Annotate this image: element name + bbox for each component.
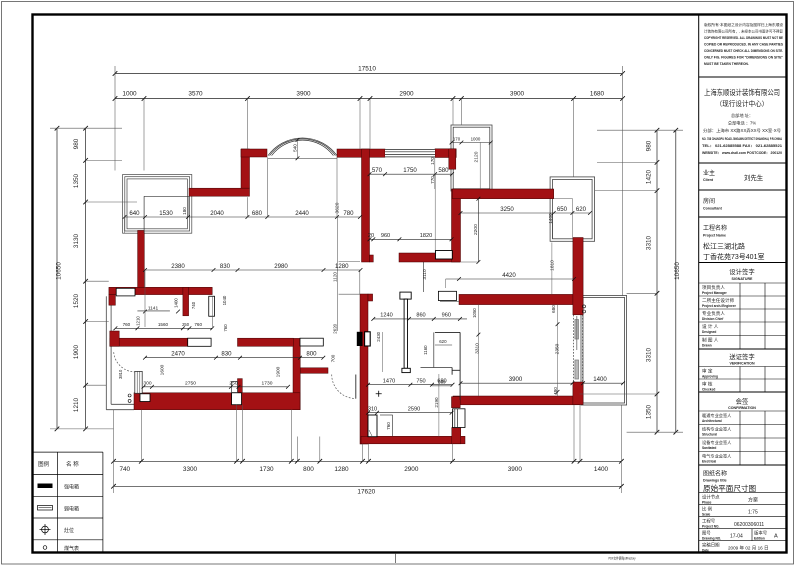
svg-text:570: 570 (372, 167, 383, 174)
svg-text:2380: 2380 (171, 263, 185, 270)
svg-text:740: 740 (119, 466, 130, 473)
svg-text:SIGNATURE: SIGNATURE (732, 277, 754, 281)
svg-text:1730: 1730 (259, 466, 274, 473)
svg-text:2470: 2470 (171, 351, 185, 358)
svg-text:780: 780 (343, 210, 354, 217)
svg-text:4420: 4420 (502, 272, 516, 279)
svg-text:2009 年 02 月 16 日: 2009 年 02 月 16 日 (728, 545, 769, 552)
svg-text:2900: 2900 (404, 466, 419, 473)
svg-text:1900: 1900 (73, 344, 80, 359)
svg-text:丁香花苑73号401室: 丁香花苑73号401室 (703, 252, 764, 261)
svg-text:1400: 1400 (174, 298, 179, 308)
svg-text:1350: 1350 (73, 173, 80, 188)
svg-text:1520: 1520 (73, 293, 80, 308)
svg-text:10650: 10650 (56, 262, 63, 280)
svg-text:680: 680 (252, 210, 263, 217)
svg-text:3900: 3900 (508, 466, 523, 473)
svg-text:310: 310 (368, 407, 377, 413)
svg-text:1350: 1350 (646, 404, 653, 419)
svg-text:3570: 3570 (188, 91, 203, 98)
svg-text:总部地 址：: 总部地 址： (731, 112, 753, 119)
svg-text:3310: 3310 (475, 343, 481, 354)
svg-text:760: 760 (194, 322, 202, 327)
svg-text:工程名称: 工程名称 (703, 224, 727, 232)
svg-text:3110: 3110 (422, 269, 428, 280)
svg-text:2980: 2980 (274, 263, 288, 270)
svg-text:700: 700 (331, 354, 336, 362)
svg-text:830: 830 (221, 351, 232, 358)
svg-text:540: 540 (293, 144, 298, 152)
svg-text:1900: 1900 (276, 366, 282, 377)
svg-text:1400: 1400 (548, 213, 553, 224)
svg-text:760: 760 (386, 422, 391, 430)
svg-text:2350: 2350 (555, 343, 561, 354)
svg-text:17-04: 17-04 (730, 534, 743, 540)
svg-text:1000: 1000 (122, 91, 137, 98)
svg-text:1040: 1040 (222, 295, 227, 305)
svg-text:2040: 2040 (210, 210, 224, 217)
svg-text:620: 620 (439, 339, 447, 344)
svg-text:06200306011: 06200306011 (734, 522, 764, 528)
svg-text:2620: 2620 (333, 323, 338, 333)
svg-text:审 核: 审 核 (702, 381, 713, 388)
svg-text:860: 860 (416, 313, 425, 319)
svg-text:Electrical: Electrical (702, 460, 716, 464)
svg-text:CONCERNED MUST CHECK ALL DIMEN: CONCERNED MUST CHECK ALL DIMENSIONS ON S… (704, 49, 783, 53)
svg-text:1280: 1280 (335, 263, 349, 270)
svg-text:Phase: Phase (702, 501, 712, 505)
svg-text:1420: 1420 (646, 169, 653, 184)
svg-text:17510: 17510 (358, 66, 376, 73)
svg-text:250: 250 (229, 381, 237, 387)
svg-text:房间: 房间 (703, 197, 715, 205)
svg-text:17620: 17620 (357, 489, 375, 496)
svg-text:项目负责人: 项目负责人 (702, 284, 725, 291)
svg-text:680: 680 (438, 380, 446, 385)
svg-text:业主: 业主 (703, 169, 715, 177)
svg-text:960: 960 (442, 313, 451, 319)
svg-text:ONLY FIG. FIGURES FOR "DIMENSI: ONLY FIG. FIGURES FOR "DIMENSIONS ON SIT… (704, 56, 783, 60)
svg-text:1600: 1600 (160, 364, 166, 375)
svg-text:3620: 3620 (335, 202, 341, 213)
svg-text:弱电箱: 弱电箱 (64, 506, 79, 513)
svg-text:Approving: Approving (702, 375, 718, 379)
svg-text:760: 760 (123, 322, 131, 327)
svg-text:灶位: 灶位 (64, 527, 74, 534)
svg-text:Division Chief: Division Chief (702, 317, 724, 321)
svg-text:980: 980 (73, 138, 80, 149)
svg-text:1530: 1530 (159, 210, 173, 217)
svg-text:总部电话 ：7%: 总部电话 ：7% (728, 120, 756, 127)
svg-text:MUST BE TAKEN THEREON.: MUST BE TAKEN THEREON. (704, 62, 749, 66)
svg-text:750: 750 (416, 379, 425, 385)
svg-text:Project arch./Engineer: Project arch./Engineer (702, 304, 737, 308)
svg-text:制 图 人: 制 图 人 (702, 337, 719, 344)
svg-text:1120: 1120 (333, 272, 338, 282)
svg-text:1400: 1400 (593, 376, 607, 383)
svg-text:图纸名称: 图纸名称 (703, 470, 727, 478)
svg-text:COPIED OR REPRODUCED. IN ANY: COPIED OR REPRODUCED. IN ANY CASE PARTIE… (704, 43, 784, 47)
svg-text:会签: 会签 (736, 397, 749, 406)
svg-text:2440: 2440 (295, 210, 309, 217)
svg-text:3900: 3900 (509, 376, 523, 383)
svg-text:VERIFICATION: VERIFICATION (729, 362, 754, 366)
svg-text:170: 170 (453, 136, 461, 141)
svg-text:740: 740 (191, 301, 196, 309)
svg-text:二所主任设计师: 二所主任设计师 (702, 297, 735, 304)
svg-text:名 称: 名 称 (66, 460, 79, 468)
svg-text:审 定: 审 定 (702, 368, 713, 375)
svg-text:3900: 3900 (510, 91, 525, 98)
svg-text:830: 830 (220, 263, 231, 270)
svg-text:1240: 1240 (380, 313, 392, 319)
svg-text:3810: 3810 (118, 369, 123, 379)
svg-text:800: 800 (303, 466, 314, 473)
svg-text:Sanitated: Sanitated (702, 446, 716, 450)
svg-text:Project NO.: Project NO. (702, 525, 719, 529)
svg-text:PDF文件使用pdfFactory: PDF文件使用pdfFactory (609, 556, 636, 561)
svg-text:刘先生: 刘先生 (744, 173, 764, 182)
svg-text:上海东顺设计装饰有限公司: 上海东顺设计装饰有限公司 (704, 88, 780, 97)
svg-text:TEL： 021-62885588 FAX： 02: TEL： 021-62885588 FAX： 021-62885521 (702, 144, 782, 148)
svg-text:10650: 10650 (674, 262, 681, 280)
svg-text:180: 180 (182, 207, 187, 215)
svg-text:Drawing NO.: Drawing NO. (702, 537, 721, 541)
svg-text:（现行设计中心）: （现行设计中心） (716, 99, 769, 108)
svg-text:3900: 3900 (296, 91, 311, 98)
svg-text:3310: 3310 (646, 347, 653, 362)
svg-text:Project Name: Project Name (703, 234, 726, 238)
svg-text:2750: 2750 (185, 381, 196, 387)
svg-text:3310: 3310 (646, 235, 653, 250)
svg-text:Drawings title: Drawings title (703, 479, 727, 483)
svg-text:480: 480 (553, 387, 558, 395)
svg-text:170: 170 (430, 157, 435, 165)
svg-text:980: 980 (646, 140, 653, 151)
svg-text:图例: 图例 (38, 460, 50, 468)
svg-text:专业负责人: 专业负责人 (702, 310, 725, 317)
svg-text:松江三湖北路: 松江三湖北路 (703, 242, 745, 251)
svg-text:1730: 1730 (262, 381, 273, 387)
svg-text:650: 650 (557, 206, 568, 213)
svg-text:计装饰有限公司所有，, 未经本公司书面许可不得复: 计装饰有限公司所有，, 未经本公司书面许可不得复 (704, 29, 784, 34)
svg-text:Project Manager: Project Manager (702, 291, 728, 295)
svg-text:结构专业会签人: 结构专业会签人 (702, 426, 732, 433)
svg-text:3250: 3250 (500, 206, 514, 213)
svg-text:COPYRIGHT RESERVED. ALL DRAWIN: COPYRIGHT RESERVED. ALL DRAWINGS MUST NO… (704, 36, 784, 40)
svg-text:Client: Client (703, 178, 714, 182)
svg-text:770: 770 (430, 176, 435, 184)
svg-text:Drawn: Drawn (702, 344, 712, 348)
svg-text:Consultant: Consultant (703, 207, 723, 211)
svg-text:Date: Date (702, 549, 709, 553)
svg-text:680: 680 (551, 305, 556, 313)
svg-text:960: 960 (381, 233, 390, 239)
svg-text:2120: 2120 (474, 151, 480, 162)
svg-text:Edition: Edition (754, 537, 765, 541)
svg-text:800: 800 (306, 351, 317, 358)
svg-text:2430: 2430 (376, 331, 381, 341)
svg-text:2900: 2900 (399, 91, 414, 98)
svg-text:1400: 1400 (594, 466, 609, 473)
svg-text:640: 640 (129, 210, 140, 217)
svg-text:1820: 1820 (420, 233, 432, 239)
svg-text:2190: 2190 (434, 397, 439, 408)
svg-text:2590: 2590 (408, 407, 420, 413)
svg-text:A: A (774, 534, 778, 540)
svg-text:1280: 1280 (334, 466, 349, 473)
svg-text:3130: 3130 (73, 233, 80, 248)
svg-text:设 计 人: 设 计 人 (702, 323, 719, 330)
svg-text:1141: 1141 (148, 305, 159, 311)
svg-text:620: 620 (576, 206, 587, 213)
svg-text:1470: 1470 (383, 379, 395, 385)
svg-text:版权所有·本图纸之设计内容及图样归上海东顺设: 版权所有·本图纸之设计内容及图样归上海东顺设 (704, 22, 784, 27)
svg-text:1050: 1050 (472, 308, 477, 318)
svg-text:Designed: Designed (702, 330, 716, 334)
svg-text:1:75: 1:75 (748, 510, 758, 516)
svg-text:原始平面尺寸图: 原始平面尺寸图 (703, 483, 756, 493)
svg-text:暖通专业会签人: 暖通专业会签人 (702, 412, 732, 419)
svg-text:Scale: Scale (702, 513, 711, 517)
svg-text:1210: 1210 (136, 316, 141, 326)
svg-text:1210: 1210 (73, 397, 80, 412)
svg-text:WEBSITE： www.dsdl.com: WEBSITE： www.dsdl.com POSTCODE： 200120 (702, 151, 782, 155)
svg-text:设备专业会签人: 设备专业会签人 (702, 439, 732, 446)
svg-text:Checked: Checked (702, 388, 715, 392)
svg-text:1680: 1680 (590, 91, 605, 98)
svg-text:电气专业会签人: 电气专业会签人 (702, 453, 732, 460)
svg-text:1000: 1000 (471, 136, 481, 141)
svg-text:1750: 1750 (403, 167, 417, 174)
svg-text:煤气表: 煤气表 (64, 545, 79, 552)
svg-text:Structural: Structural (702, 433, 717, 437)
svg-text:250: 250 (182, 322, 190, 327)
svg-text:1560: 1560 (158, 322, 169, 327)
svg-text:分部：上海市 XX路XX弄XX号 XX室·X号: 分部：上海市 XX路XX弄XX号 XX室·X号 (703, 127, 781, 134)
svg-text:送证签字: 送证签字 (729, 352, 755, 361)
svg-text:20: 20 (368, 233, 374, 239)
svg-text:Architectural: Architectural (702, 419, 722, 423)
svg-text:300: 300 (143, 381, 151, 387)
svg-text:1810: 1810 (550, 260, 556, 271)
svg-text:760: 760 (223, 324, 228, 332)
svg-text:设计签字: 设计签字 (729, 267, 755, 276)
svg-text:1160: 1160 (423, 345, 428, 355)
svg-text:3300: 3300 (183, 466, 198, 473)
svg-text:CONFIRMATION: CONFIRMATION (728, 406, 756, 410)
svg-text:方案: 方案 (748, 497, 758, 504)
svg-text:580: 580 (438, 167, 449, 174)
svg-text:强电箱: 强电箱 (64, 484, 79, 491)
svg-text:NO. 788 CHANGPU ROAD JINGAMN D: NO. 788 CHANGPU ROAD JINGAMN DETEICT SHA… (702, 137, 782, 141)
